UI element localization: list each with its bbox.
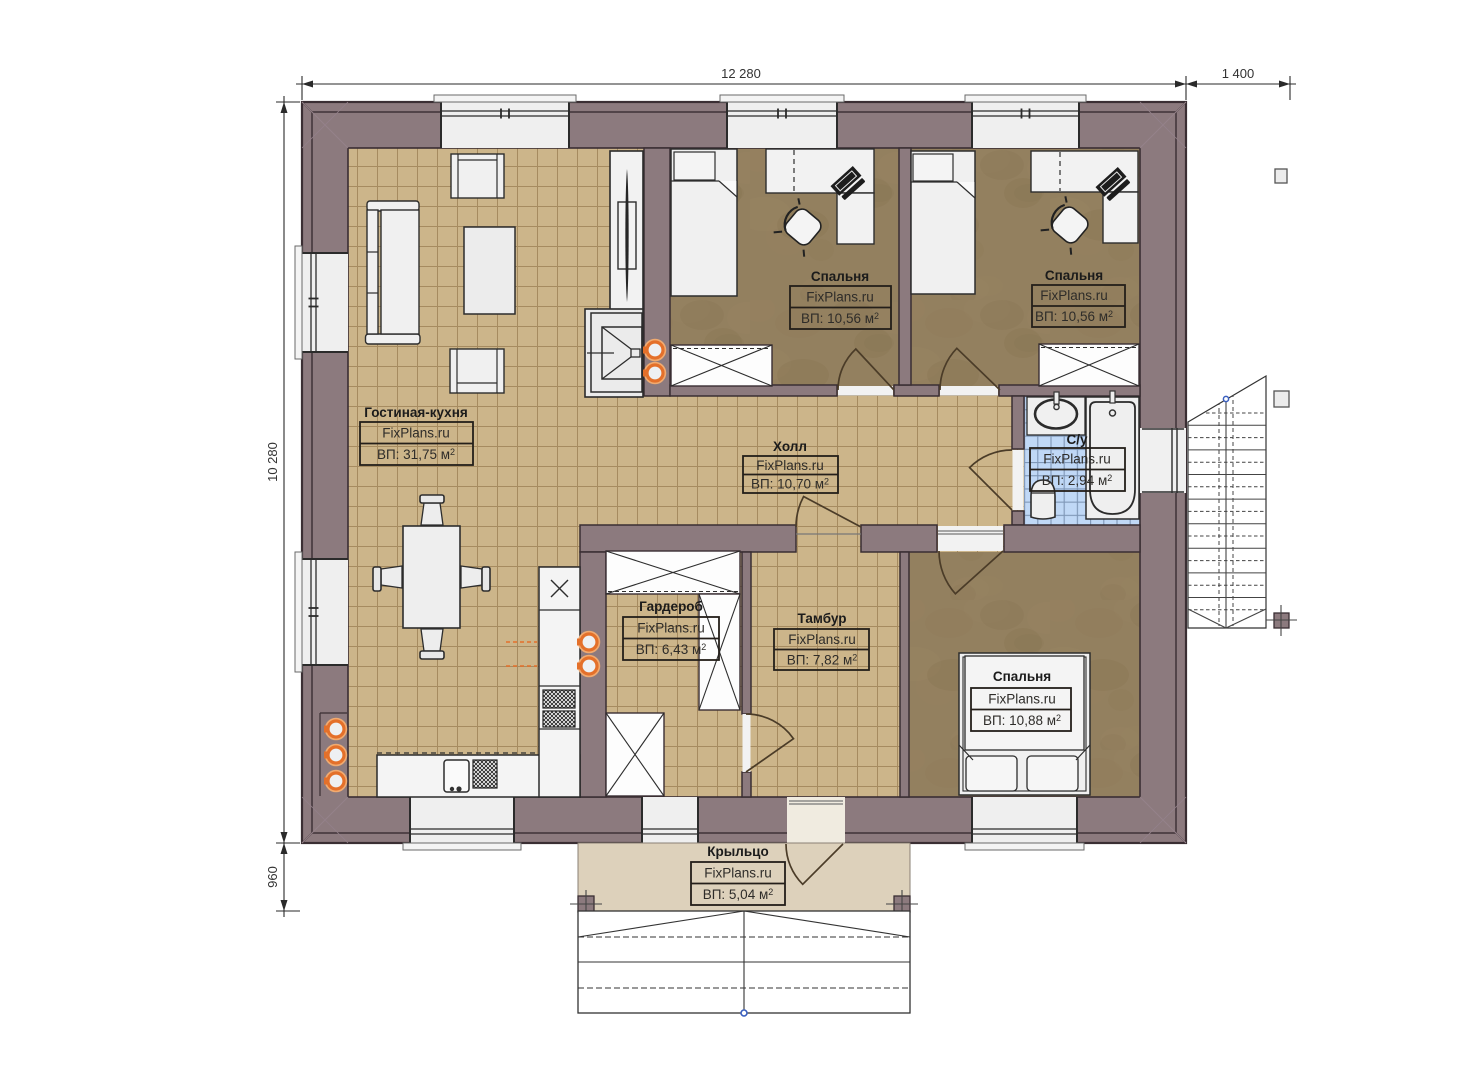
svg-text:FixPlans.ru: FixPlans.ru	[1040, 288, 1108, 303]
svg-text:С/у: С/у	[1066, 432, 1088, 447]
svg-text:ВП: 10,56 м2: ВП: 10,56 м2	[1035, 309, 1113, 324]
svg-text:Спальня: Спальня	[993, 669, 1051, 684]
svg-text:FixPlans.ru: FixPlans.ru	[637, 620, 705, 635]
svg-text:Гардероб: Гардероб	[639, 599, 703, 614]
svg-text:1 400: 1 400	[1222, 66, 1255, 81]
svg-text:ВП: 5,04 м2: ВП: 5,04 м2	[703, 887, 774, 902]
svg-text:FixPlans.ru: FixPlans.ru	[756, 458, 824, 473]
svg-text:FixPlans.ru: FixPlans.ru	[806, 289, 874, 304]
svg-text:960: 960	[265, 866, 280, 888]
svg-text:Спальня: Спальня	[1045, 268, 1103, 283]
svg-text:Спальня: Спальня	[811, 269, 869, 284]
svg-text:FixPlans.ru: FixPlans.ru	[704, 865, 772, 880]
svg-text:12 280: 12 280	[721, 66, 761, 81]
svg-text:Гостиная-кухня: Гостиная-кухня	[364, 405, 467, 420]
svg-text:Крыльцо: Крыльцо	[707, 844, 768, 859]
svg-text:FixPlans.ru: FixPlans.ru	[1043, 451, 1111, 466]
svg-text:10 280: 10 280	[265, 442, 280, 482]
svg-text:ВП: 10,70 м2: ВП: 10,70 м2	[751, 476, 829, 491]
svg-text:ВП: 7,82 м2: ВП: 7,82 м2	[787, 652, 858, 667]
svg-text:ВП: 6,43 м2: ВП: 6,43 м2	[636, 642, 707, 657]
svg-text:ВП: 31,75 м2: ВП: 31,75 м2	[377, 447, 455, 462]
svg-text:ВП: 10,56 м2: ВП: 10,56 м2	[801, 311, 879, 326]
svg-text:FixPlans.ru: FixPlans.ru	[382, 425, 450, 440]
svg-text:FixPlans.ru: FixPlans.ru	[988, 691, 1056, 706]
svg-text:ВП: 10,88 м2: ВП: 10,88 м2	[983, 713, 1061, 728]
svg-text:ВП: 2,94 м2: ВП: 2,94 м2	[1042, 473, 1113, 488]
svg-text:FixPlans.ru: FixPlans.ru	[788, 632, 856, 647]
svg-text:Тамбур: Тамбур	[798, 611, 847, 626]
svg-text:Холл: Холл	[773, 439, 807, 454]
